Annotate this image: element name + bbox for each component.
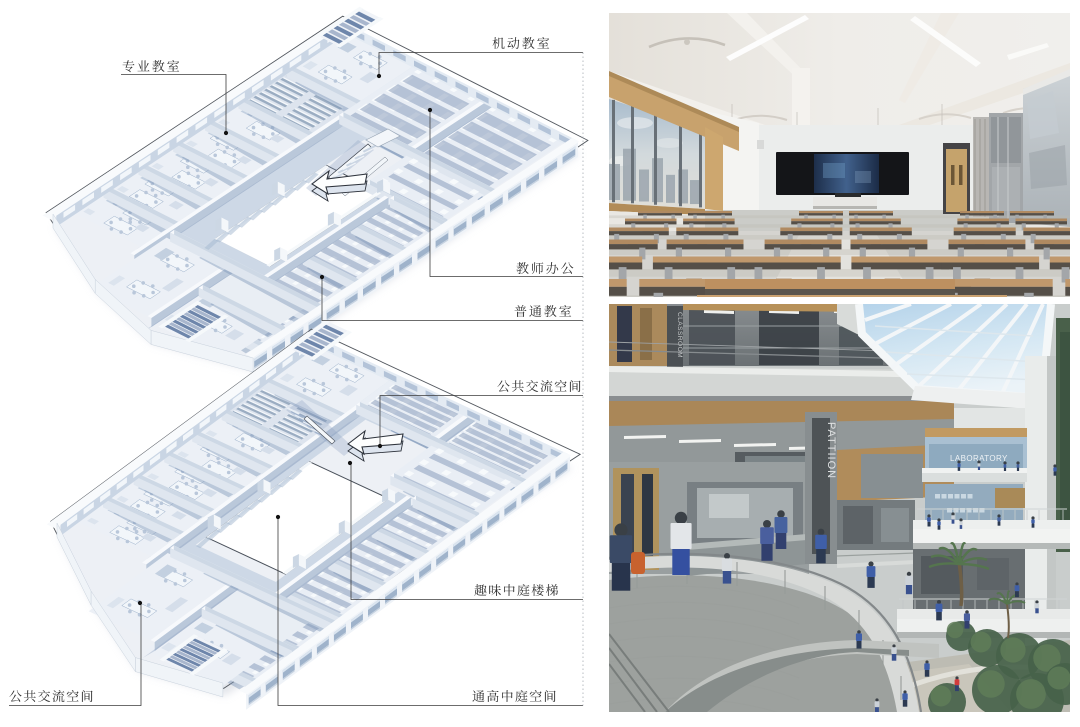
svg-text:CLASSROOM: CLASSROOM [676, 312, 683, 358]
svg-text:PATTIION: PATTIION [825, 422, 837, 479]
